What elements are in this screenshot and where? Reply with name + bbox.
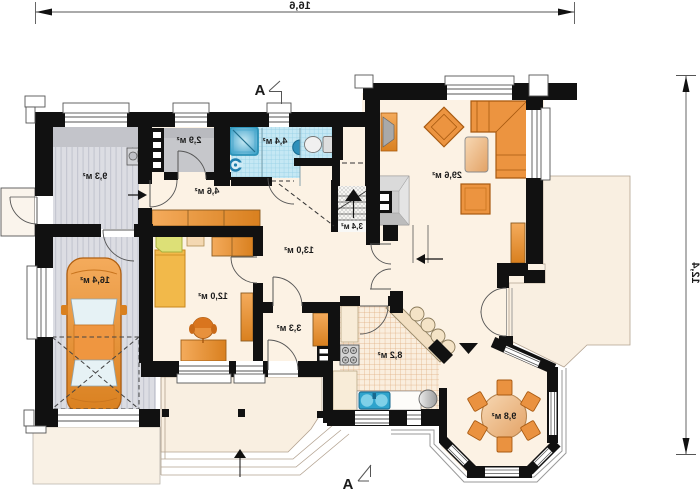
svg-text:A: A — [254, 82, 265, 99]
svg-text:16,6: 16,6 — [289, 0, 310, 12]
svg-text:16,4 м²: 16,4 м² — [80, 275, 110, 285]
svg-text:12,4: 12,4 — [689, 261, 700, 283]
svg-text:29,6 м²: 29,6 м² — [432, 170, 462, 180]
svg-text:A: A — [342, 476, 353, 490]
svg-text:3,4 м²: 3,4 м² — [341, 222, 363, 231]
svg-text:4,6 м²: 4,6 м² — [195, 186, 220, 196]
svg-text:12,0 м²: 12,0 м² — [198, 291, 228, 301]
svg-text:8,2 м²: 8,2 м² — [378, 350, 403, 360]
svg-text:2,9 м²: 2,9 м² — [177, 135, 202, 145]
svg-text:9,8 м²: 9,8 м² — [492, 411, 517, 421]
svg-text:13,0 м²: 13,0 м² — [284, 245, 314, 255]
svg-text:4,4 м²: 4,4 м² — [263, 136, 288, 146]
svg-text:9,3 м²: 9,3 м² — [83, 171, 108, 181]
svg-text:3,3 м²: 3,3 м² — [277, 323, 302, 333]
